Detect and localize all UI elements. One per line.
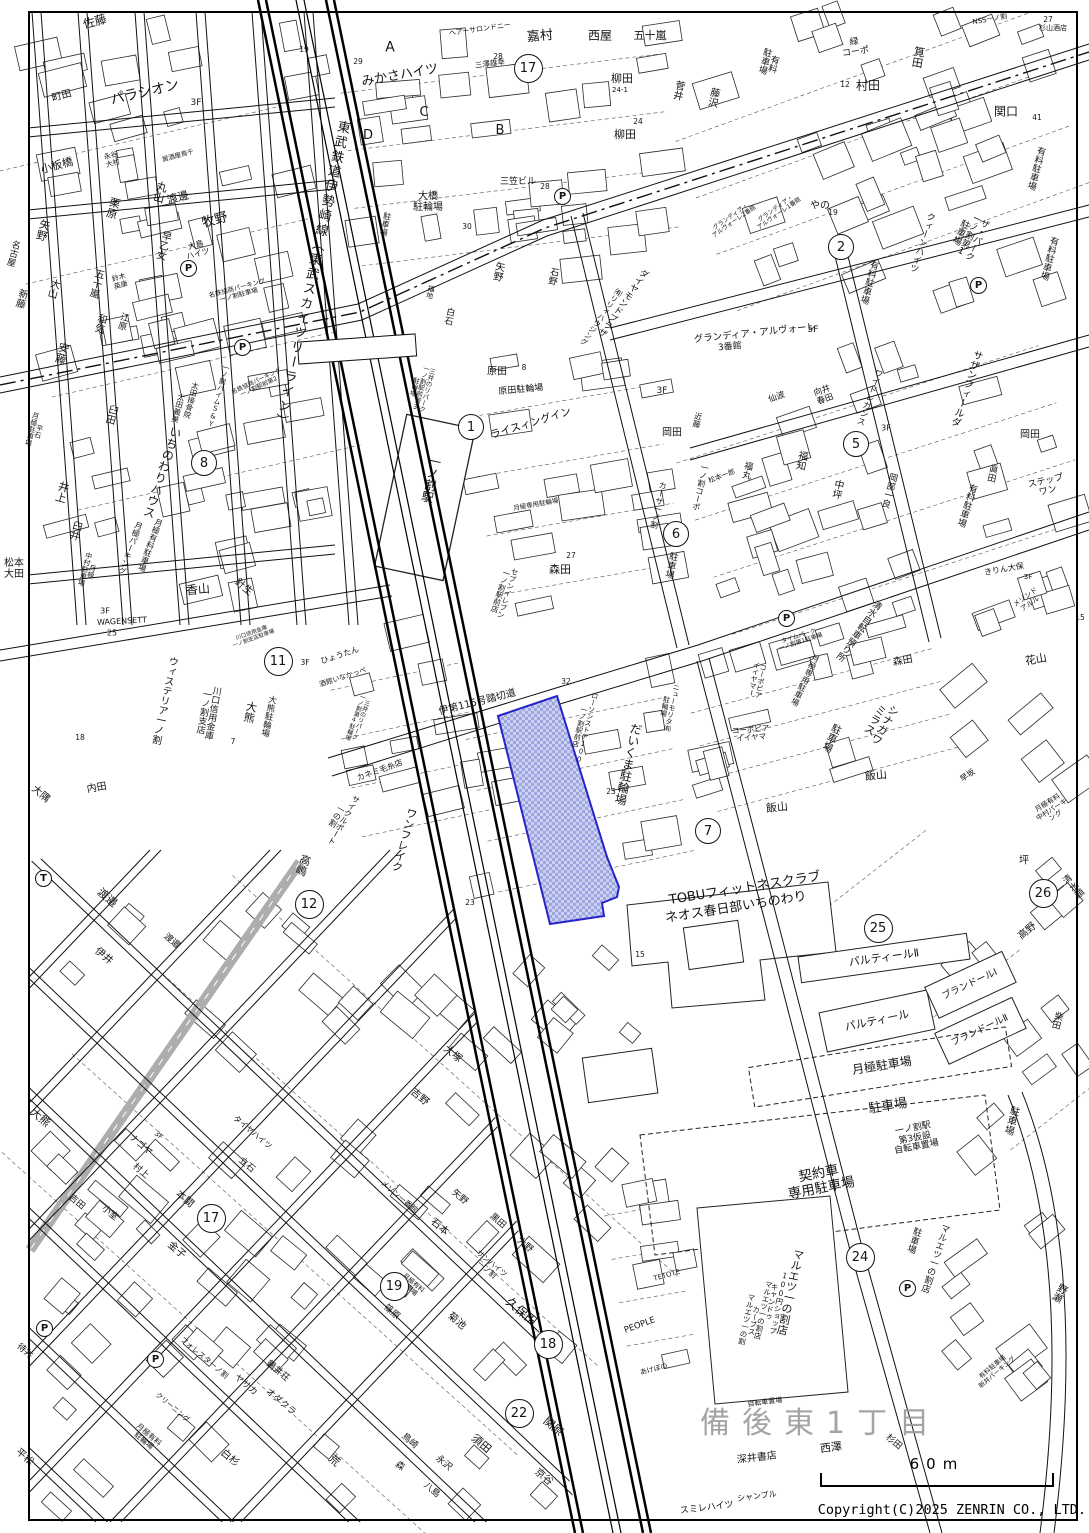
parking-icon: P xyxy=(970,277,987,294)
railway-tracks xyxy=(258,0,651,1533)
parking-icon: P xyxy=(554,188,571,205)
map-base-layer xyxy=(0,0,1089,1533)
partir-building xyxy=(819,990,935,1052)
parking-icon: P xyxy=(778,610,795,627)
map-canvas[interactable]: 東武鉄道伊勢崎線（東武スカイツリーライン） 一ノ割駅 伊第115号踏切道 備後東… xyxy=(0,0,1089,1533)
telephone-icon: T xyxy=(35,870,52,887)
parking-icon: P xyxy=(180,260,197,277)
highlighted-parcel[interactable] xyxy=(498,696,619,924)
parking-icon: P xyxy=(899,1280,916,1297)
circled-number: 17 xyxy=(514,54,543,83)
circled-number: 11 xyxy=(264,647,293,676)
circled-number: 1 xyxy=(458,414,484,440)
circled-number: 5 xyxy=(843,431,869,457)
circled-number: 19 xyxy=(380,1272,409,1301)
parking-icon: P xyxy=(36,1320,53,1337)
maruetsu-building xyxy=(697,1196,848,1404)
circled-number: 26 xyxy=(1029,879,1058,908)
station-overpass xyxy=(297,334,416,364)
circled-number: 18 xyxy=(534,1330,563,1359)
scale-bar-label: 60m xyxy=(820,1455,1054,1473)
scale-bar: 60m xyxy=(820,1455,1054,1487)
major-buildings xyxy=(375,414,1027,1404)
parking-icon: P xyxy=(234,339,251,356)
circled-number: 12 xyxy=(295,890,324,919)
scale-bar-line xyxy=(820,1473,1054,1487)
circled-number: 8 xyxy=(191,450,217,476)
circled-number: 6 xyxy=(663,521,689,547)
circled-number: 25 xyxy=(864,914,893,943)
circled-number: 22 xyxy=(505,1399,534,1428)
circled-number: 2 xyxy=(828,234,854,260)
copyright-text: Copyright(C)2025 ZENRIN CO., LTD. xyxy=(818,1502,1086,1518)
circled-number: 24 xyxy=(846,1243,875,1272)
circled-number: 17 xyxy=(197,1204,226,1233)
parking-icon: P xyxy=(147,1351,164,1368)
circled-number: 7 xyxy=(695,818,721,844)
